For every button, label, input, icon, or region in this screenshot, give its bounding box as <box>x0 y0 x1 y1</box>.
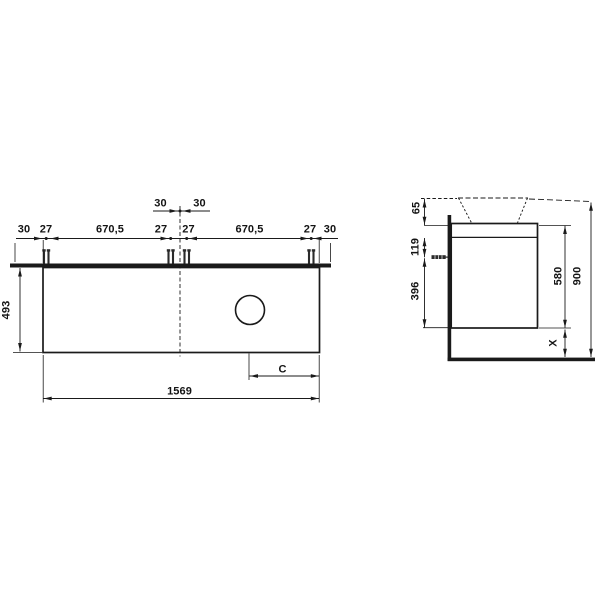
dim-label-rim-65: 65 <box>411 201 422 213</box>
cabinet-front-outline <box>43 268 320 353</box>
wall-line <box>448 215 452 361</box>
dim-label-mid-27-a: 27 <box>155 225 167 236</box>
dim-label-mid-27-b: 27 <box>182 225 194 236</box>
dim-label-height-493: 493 <box>2 300 13 319</box>
fixing-screws-front <box>42 249 315 263</box>
dim-label-bottom-396: 396 <box>410 282 421 301</box>
dim-label-center-left-30: 30 <box>154 198 166 209</box>
dim-label-body-580: 580 <box>553 267 564 286</box>
dim-fixing-119 <box>423 238 427 257</box>
dim-bottom-396 <box>423 258 427 327</box>
dim-label-clearance-x: X <box>549 339 560 346</box>
dim-label-left-27: 27 <box>40 225 52 236</box>
dim-rim-65 <box>423 199 427 225</box>
dim-label-width-1569: 1569 <box>167 386 192 397</box>
dim-label-overall-900: 900 <box>572 267 583 286</box>
washbasin-dashed-outline <box>421 198 592 223</box>
dim-center-offsets <box>153 209 210 213</box>
dim-label-left-30: 30 <box>18 225 30 236</box>
floor-line <box>448 358 595 362</box>
drawing-lines <box>0 0 600 600</box>
countertop-line <box>10 264 331 268</box>
dim-clearance-x <box>563 330 567 358</box>
dim-overall-900 <box>589 203 593 358</box>
cabinet-side-outline <box>451 224 537 329</box>
dim-label-center-right-30: 30 <box>193 198 205 209</box>
dim-top-chain <box>15 237 338 263</box>
front-view <box>10 206 338 403</box>
dim-label-right-30: 30 <box>324 225 336 236</box>
drain-hole-circle <box>236 296 265 325</box>
dim-label-left-670-5: 670,5 <box>96 225 124 236</box>
dim-label-fixing-119: 119 <box>410 237 421 255</box>
dim-height-493 <box>13 268 42 352</box>
dim-label-right-670-5: 670,5 <box>235 225 263 236</box>
technical-drawing-canvas: 30 30 30 27 670,5 27 27 670,5 27 30 493 … <box>0 0 600 600</box>
side-view <box>421 198 595 361</box>
dim-label-outlet-c: C <box>278 364 286 375</box>
dim-label-right-27: 27 <box>304 225 316 236</box>
